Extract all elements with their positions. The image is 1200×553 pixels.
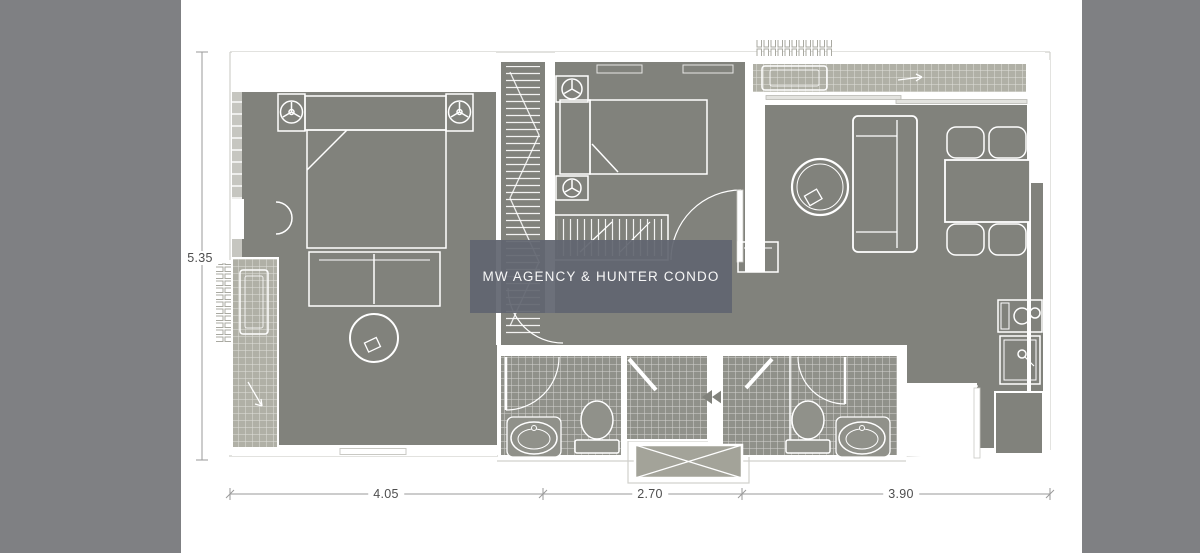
balcony-right — [752, 40, 1027, 104]
watermark-banner: MW AGENCY & HUNTER CONDO — [470, 240, 732, 313]
bathroom-1 — [500, 355, 708, 457]
service-shaft — [635, 445, 742, 478]
dining-chair — [989, 224, 1026, 255]
dining-table — [945, 160, 1030, 222]
base-cabinet — [995, 392, 1043, 454]
dining-chair — [947, 224, 984, 255]
bottom-window — [340, 449, 406, 455]
dimension-label-right: 3.90 — [883, 487, 919, 501]
dining-chair — [989, 127, 1026, 158]
sink-icon — [836, 417, 890, 457]
floorplan-page: MW AGENCY & HUNTER CONDO 5.35 4.05 2.70 … — [0, 0, 1200, 553]
ac-unit-icon — [216, 263, 232, 343]
ac-unit-icon — [755, 40, 833, 56]
sink-icon — [507, 417, 561, 457]
balcony-left — [216, 258, 278, 448]
bathroom-2 — [722, 355, 898, 457]
dimension-label-left: 4.05 — [368, 487, 404, 501]
watermark-text: MW AGENCY & HUNTER CONDO — [483, 269, 720, 284]
dimension-label-vertical: 5.35 — [182, 251, 218, 265]
dining-chair — [947, 127, 984, 158]
dimension-label-center: 2.70 — [632, 487, 668, 501]
